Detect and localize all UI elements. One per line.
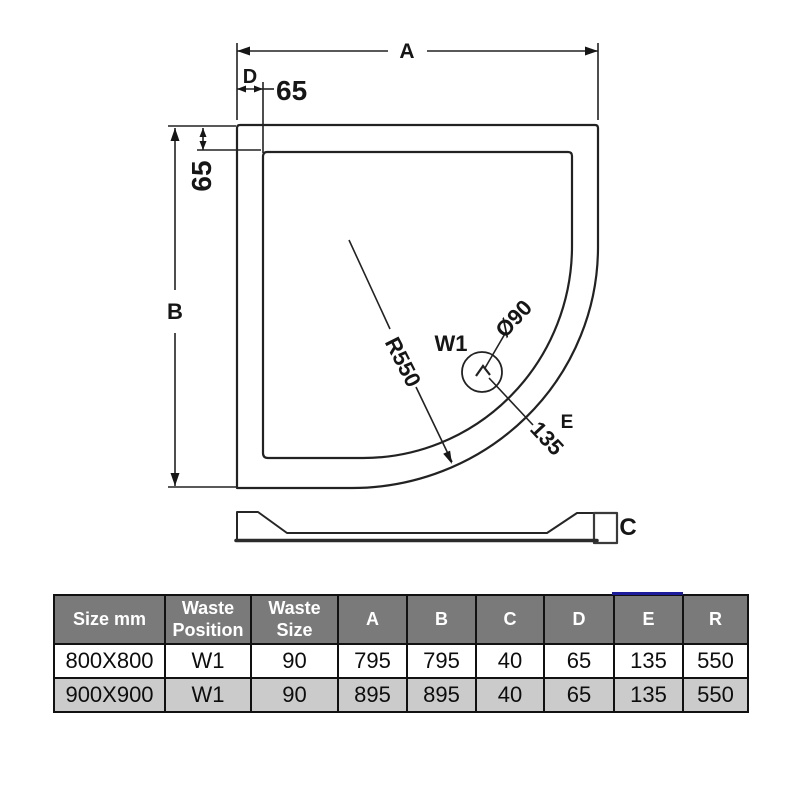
cell: 795 bbox=[338, 644, 407, 678]
arrowhead bbox=[254, 86, 263, 93]
cell: 40 bbox=[476, 678, 544, 712]
waste-center-mark bbox=[476, 366, 490, 376]
dim-b-label: B bbox=[167, 299, 183, 324]
cell: 65 bbox=[544, 644, 614, 678]
col-header-c: C bbox=[476, 595, 544, 644]
profile-end-block bbox=[594, 513, 617, 543]
arrowhead bbox=[237, 86, 246, 93]
cell: 895 bbox=[338, 678, 407, 712]
cell: W1 bbox=[165, 644, 251, 678]
col-header-size: Size mm bbox=[54, 595, 165, 644]
cell: W1 bbox=[165, 678, 251, 712]
e-column-highlight bbox=[612, 592, 683, 595]
dim-e-leader bbox=[489, 378, 533, 425]
arrowhead bbox=[585, 47, 598, 56]
shower-tray-spec-sheet: A B D 65 65 bbox=[0, 0, 800, 800]
radius-line bbox=[416, 387, 452, 462]
dimension-d: D 65 bbox=[237, 66, 307, 153]
cell: 895 bbox=[407, 678, 476, 712]
cell: 900X900 bbox=[54, 678, 165, 712]
cell: 135 bbox=[614, 678, 683, 712]
col-header-d: D bbox=[544, 595, 614, 644]
cell: 90 bbox=[251, 644, 338, 678]
cell: 135 bbox=[614, 644, 683, 678]
edge-inset-value: 65 bbox=[186, 160, 217, 191]
header-row: Size mm Waste Position Waste Size A B C … bbox=[54, 595, 748, 644]
cell: 65 bbox=[544, 678, 614, 712]
arrowhead bbox=[443, 451, 452, 464]
table-row-900: 900X900 W1 90 895 895 40 65 135 550 bbox=[54, 678, 748, 712]
profile-view: C bbox=[236, 512, 637, 543]
dim-e-label: E bbox=[561, 412, 574, 433]
table-row-800: 800X800 W1 90 795 795 40 65 135 550 bbox=[54, 644, 748, 678]
col-header-waste-position: Waste Position bbox=[165, 595, 251, 644]
col-header-r: R bbox=[683, 595, 748, 644]
col-header-waste-size: Waste Size bbox=[251, 595, 338, 644]
arrowhead bbox=[237, 47, 250, 56]
radius-label: R550 bbox=[380, 333, 426, 391]
cell: 795 bbox=[407, 644, 476, 678]
cell: 800X800 bbox=[54, 644, 165, 678]
cell: 550 bbox=[683, 678, 748, 712]
profile-height-label: C bbox=[619, 514, 636, 541]
dimension-edge-inset: 65 bbox=[186, 128, 261, 192]
waste-diameter-label: Ø90 bbox=[490, 295, 537, 342]
dim-d-label: D bbox=[243, 66, 257, 88]
technical-drawing: A B D 65 65 bbox=[0, 0, 800, 580]
cell: 40 bbox=[476, 644, 544, 678]
arrowhead bbox=[171, 128, 180, 141]
profile-outline bbox=[237, 512, 594, 541]
radius-line bbox=[349, 240, 390, 329]
cell: 550 bbox=[683, 644, 748, 678]
cell: 90 bbox=[251, 678, 338, 712]
col-header-e: E bbox=[614, 595, 683, 644]
dim-a-label: A bbox=[399, 40, 414, 63]
arrowhead bbox=[200, 128, 207, 137]
arrowhead bbox=[200, 141, 207, 150]
arrowhead bbox=[171, 473, 180, 486]
col-header-b: B bbox=[407, 595, 476, 644]
spec-table: Size mm Waste Position Waste Size A B C … bbox=[53, 594, 749, 713]
col-header-a: A bbox=[338, 595, 407, 644]
dim-d-value: 65 bbox=[276, 75, 307, 106]
waste-position-label: W1 bbox=[435, 331, 468, 356]
